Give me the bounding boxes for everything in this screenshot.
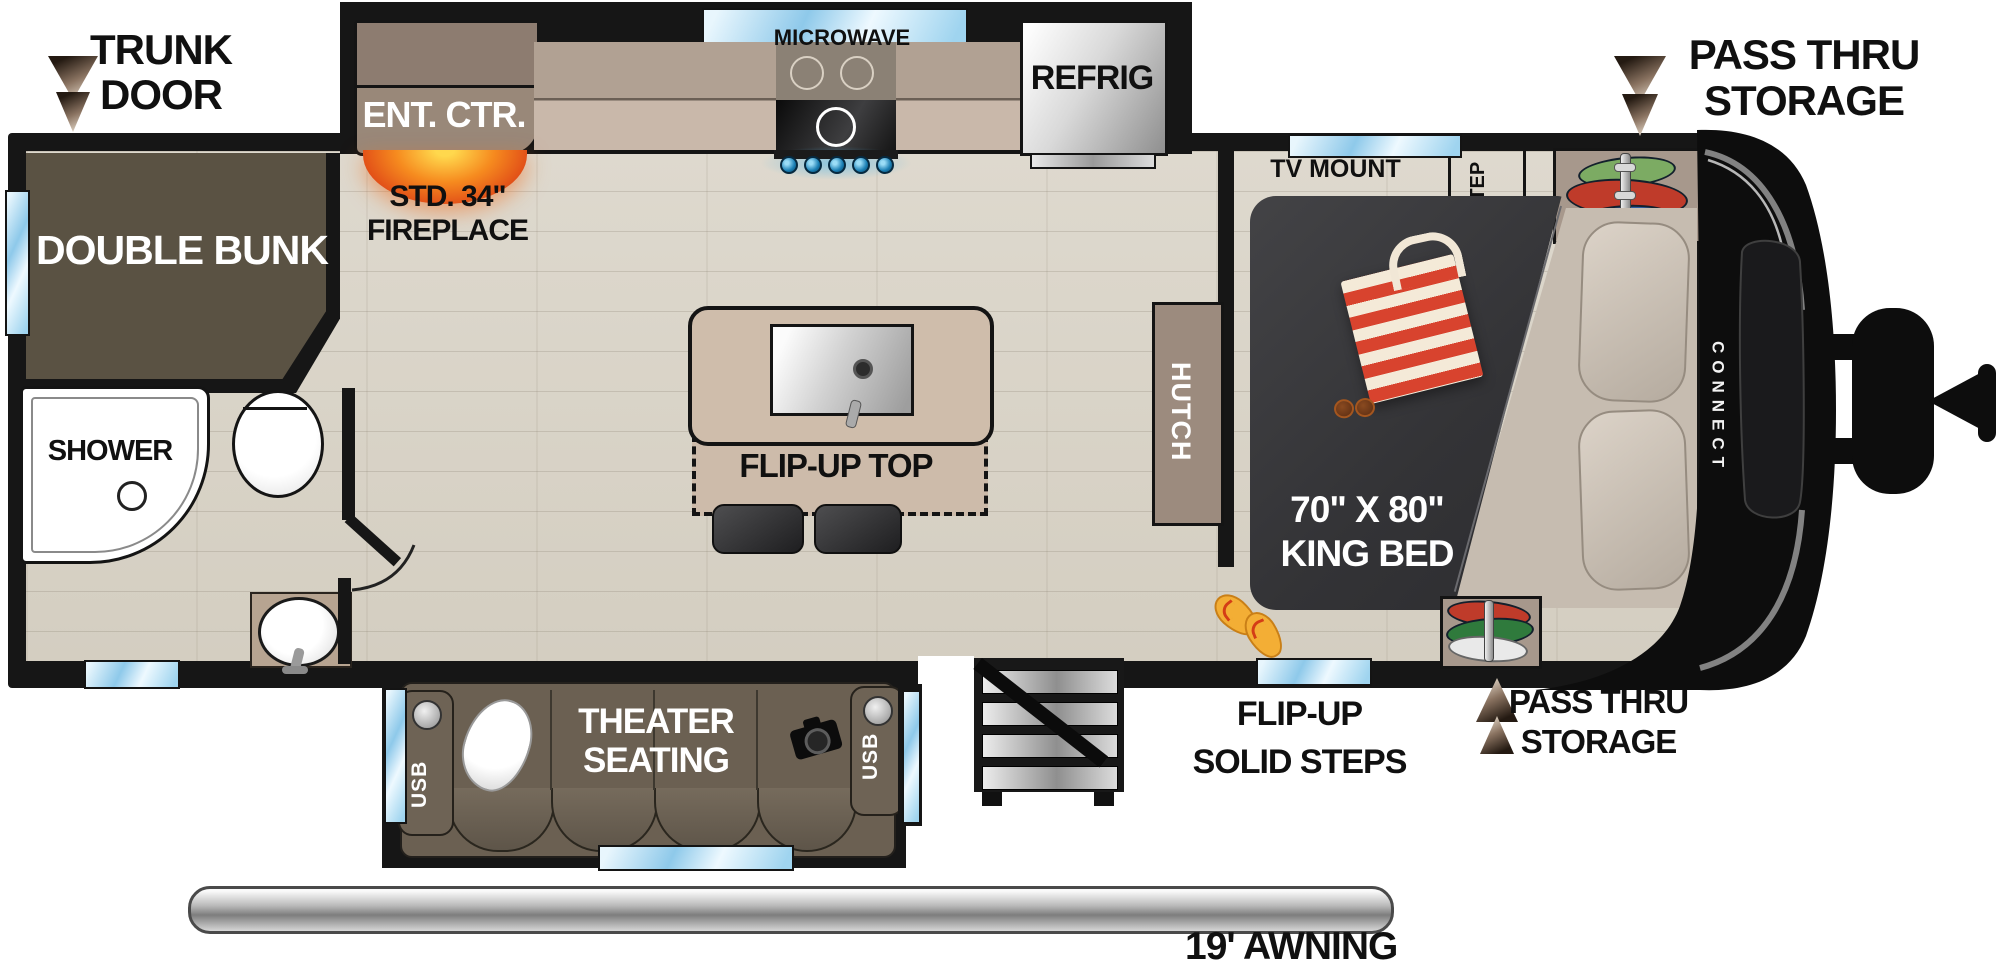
entry-door-glass-icon: [902, 690, 921, 824]
pass-thru-arrow-icon: [1622, 94, 1658, 136]
rod-knob: [1614, 191, 1636, 200]
steps-foot: [1094, 792, 1114, 806]
burner-icon: [790, 56, 824, 90]
double-bunk-label: DOUBLE BUNK: [36, 228, 300, 272]
island-sink-icon: [770, 324, 914, 416]
window-icon: [598, 845, 794, 871]
hutch-label: HUTCH: [1166, 342, 1195, 482]
window-icon: [5, 190, 30, 336]
awning-label: 19' AWNING: [1185, 926, 1395, 968]
steps-foot: [982, 792, 1002, 806]
hitch-coupler-icon: [1928, 372, 1982, 430]
hitch-frame-bar: [1824, 438, 1874, 464]
refrigerator-label: REFRIG: [1022, 60, 1162, 97]
theater-label: THEATER SEATING: [556, 702, 756, 780]
ent-ctr-label: ENT. CTR.: [358, 96, 530, 135]
ent-ctr-cabinet: [354, 20, 540, 156]
propane-tank-icon: [1852, 308, 1934, 494]
entry-opening: [918, 656, 974, 691]
cap-window-panel: [1740, 241, 1804, 518]
pillow-icon: [1577, 408, 1691, 592]
usb-label-right: USB: [860, 716, 883, 796]
bath-wall-stub: [338, 578, 351, 664]
ent-ctr-shelf: [357, 23, 537, 88]
floorplan-canvas: 19' AWNING ENT. CTR. MICROWAVE REFRIG ST…: [0, 0, 2000, 976]
stove-knob-icon: [852, 156, 870, 174]
usb-label-left: USB: [409, 744, 432, 824]
cooktop-icon: [776, 100, 896, 150]
trunk-door-arrow-icon: [56, 92, 90, 132]
pass-thru-top-label: PASS THRU STORAGE: [1672, 32, 1936, 124]
window-icon: [384, 688, 407, 824]
cupholder-icon: [412, 700, 442, 730]
bath-faucet-icon: [282, 666, 308, 674]
pass-thru-bottom-label: PASS THRU STORAGE: [1506, 682, 1691, 761]
window-icon: [84, 660, 180, 689]
seat-divider: [550, 690, 552, 790]
stove-knob-icon: [876, 156, 894, 174]
microwave-label: MICROWAVE: [762, 26, 922, 50]
bar-stool-icon: [712, 504, 804, 554]
entry-steps-label: FLIP-UP SOLID STEPS: [1192, 690, 1407, 787]
stove-knob-icon: [780, 156, 798, 174]
entry-steps-icon: [974, 658, 1124, 792]
burner-icon: [840, 56, 874, 90]
hitch-frame-bar: [1824, 334, 1874, 360]
shower-label: SHOWER: [30, 436, 190, 467]
flip-up-top-label: FLIP-UP TOP: [700, 448, 972, 484]
stove-knob-icon: [828, 156, 846, 174]
burner-icon: [816, 107, 856, 147]
bar-stool-icon: [814, 504, 902, 554]
hitch-coupler-end: [1978, 364, 1996, 442]
stove-knob-icon: [804, 156, 822, 174]
cap-accent-line: [1708, 160, 1782, 246]
toilet-icon: [232, 390, 324, 498]
toilet-tank-line: [243, 407, 307, 410]
shower-drain-icon: [117, 481, 147, 511]
tv-mount-label: TV MOUNT: [1258, 156, 1413, 183]
sink-drain-icon: [853, 359, 873, 379]
cooktop-upper: [776, 42, 896, 100]
fridge-vent: [1030, 153, 1156, 169]
seat-divider: [756, 690, 758, 790]
wardrobe-bottom: [1440, 596, 1542, 669]
window-icon: [1288, 134, 1462, 158]
fireplace-label: STD. 34" FIREPLACE: [360, 180, 535, 247]
bath-wall: [342, 388, 355, 520]
window-icon: [1256, 658, 1372, 686]
step-tread: [982, 766, 1118, 790]
trunk-door-label: TRUNK DOOR: [86, 28, 236, 118]
bed-label: 70" X 80" KING BED: [1272, 488, 1462, 575]
wardrobe-rod-icon: [1484, 600, 1494, 662]
pillow-icon: [1577, 220, 1691, 404]
brand-logo: CONNECT: [1708, 268, 1726, 548]
rod-knob: [1614, 163, 1636, 172]
shower-inner-line: [31, 397, 199, 553]
